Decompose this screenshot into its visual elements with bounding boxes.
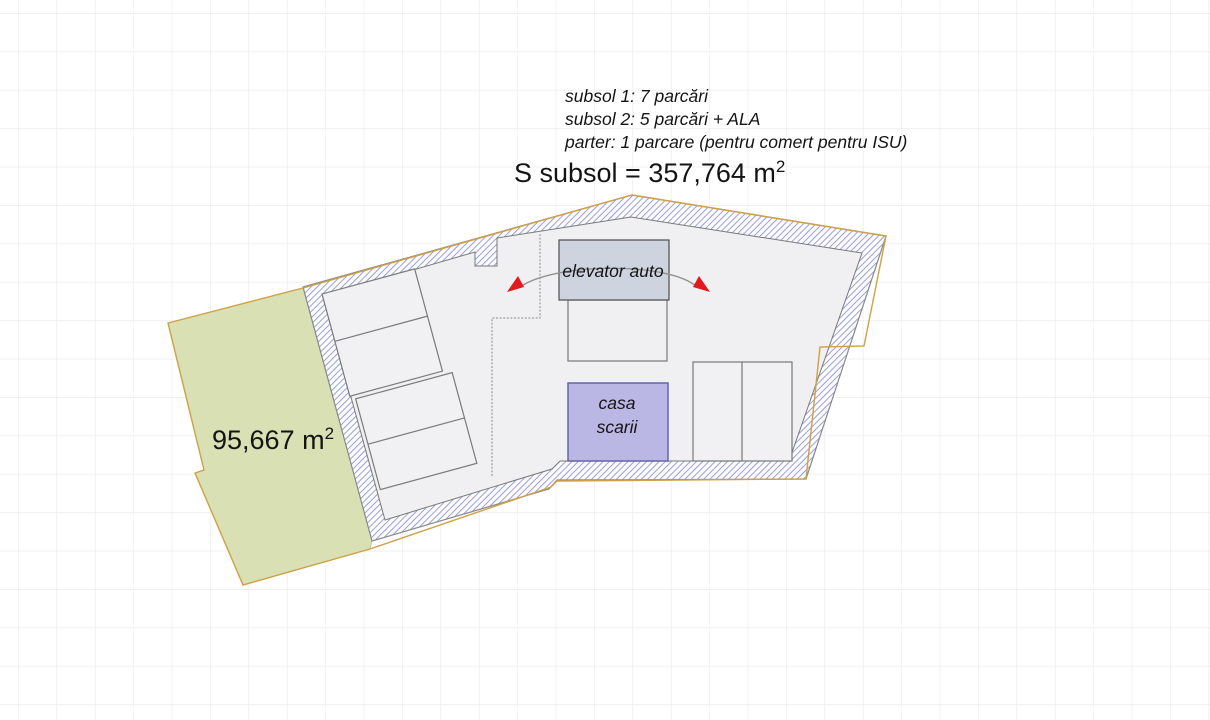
staircase-label-line2: scarii — [597, 417, 639, 437]
annotation-line-1: subsol 1: 7 parcări — [565, 86, 709, 106]
parking-group-right — [693, 362, 792, 461]
staircase-label-line1: casa — [599, 393, 636, 413]
annotation-line-3: parter: 1 parcare (pentru comert pentru … — [564, 132, 907, 152]
site-plan-drawing: elevator auto casa scarii subsol 1: 7 pa… — [0, 0, 1210, 720]
subsol-area-label: S subsol = 357,764 m2 — [514, 157, 785, 188]
green-area-label: 95,667 m2 — [212, 424, 334, 455]
annotation-line-2: subsol 2: 5 parcări + ALA — [565, 109, 760, 129]
elevator-label: elevator auto — [562, 261, 663, 281]
floor-plan-canvas: elevator auto casa scarii subsol 1: 7 pa… — [0, 0, 1210, 720]
